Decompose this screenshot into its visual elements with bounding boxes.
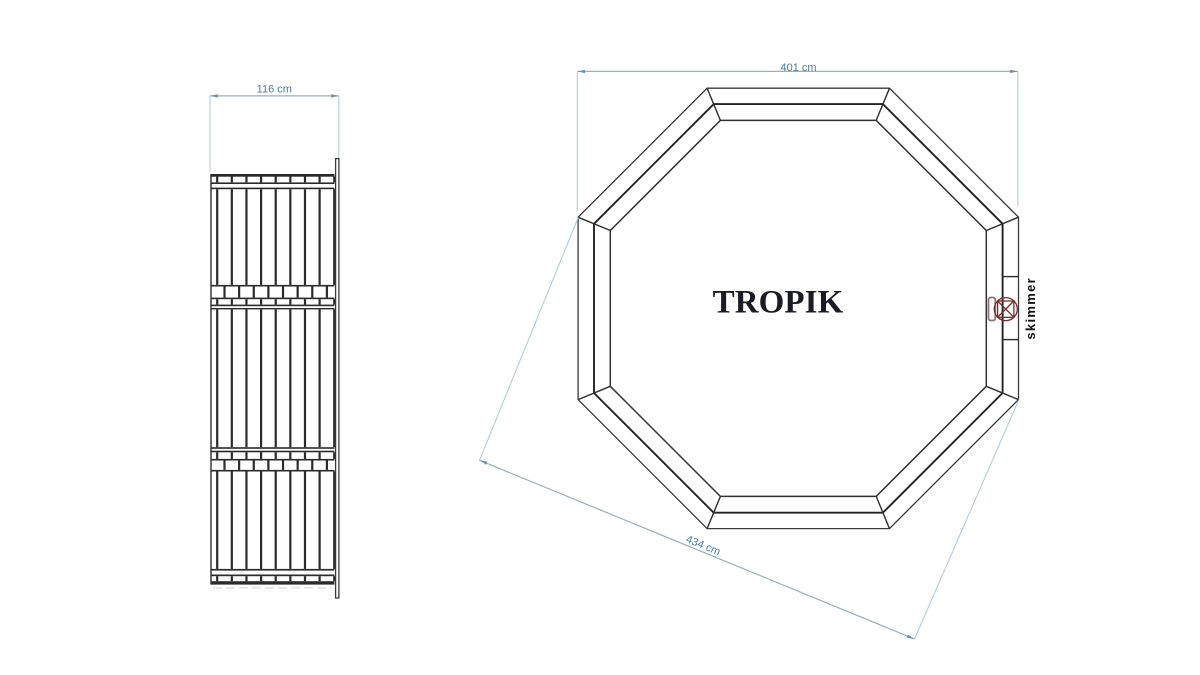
svg-text:TROPIK: TROPIK [713,285,844,321]
svg-text:401 cm: 401 cm [780,62,816,74]
svg-text:skimmer: skimmer [1023,277,1038,340]
svg-text:116 cm: 116 cm [257,84,292,96]
